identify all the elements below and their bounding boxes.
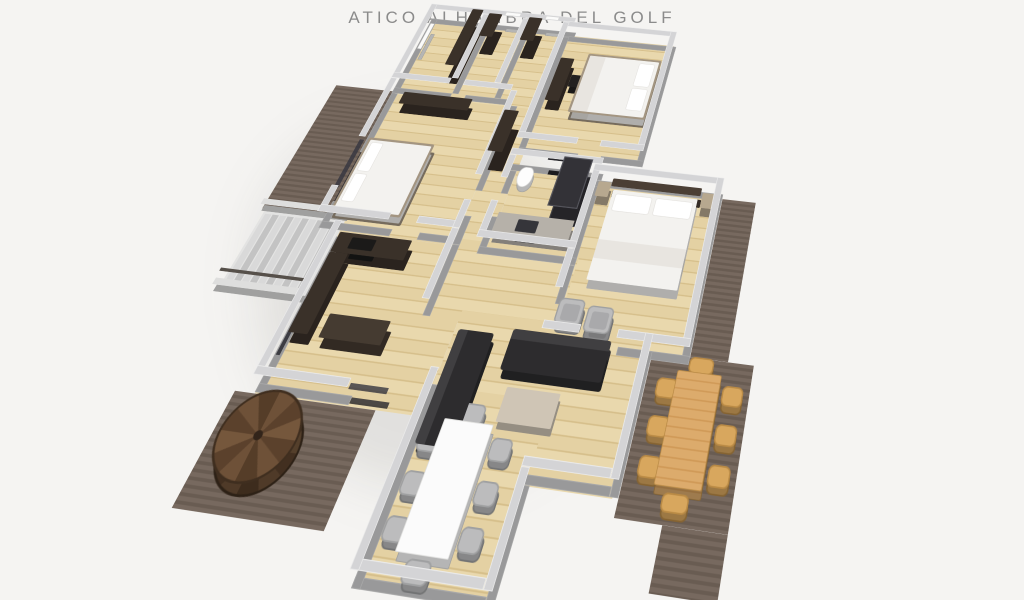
east-terrace-deck: [649, 525, 728, 600]
coffee-table: [495, 387, 560, 430]
outdoor-chair: [720, 385, 745, 408]
outdoor-chair: [659, 492, 690, 516]
wall: [521, 474, 612, 497]
render-scene: [0, 0, 1024, 600]
wall: [562, 21, 677, 37]
spiral-staircase-post: [251, 430, 264, 441]
sink: [514, 219, 539, 233]
floorplan-viewer: ATICO ALHAMBRA DEL GOLF: [0, 0, 1024, 600]
outdoor-chair: [713, 423, 738, 448]
cooktop: [347, 237, 377, 251]
armchair-seat: [559, 303, 581, 322]
armchair-seat: [588, 311, 610, 330]
floorplan-3d: [0, 2, 857, 600]
outdoor-chair: [706, 464, 732, 490]
